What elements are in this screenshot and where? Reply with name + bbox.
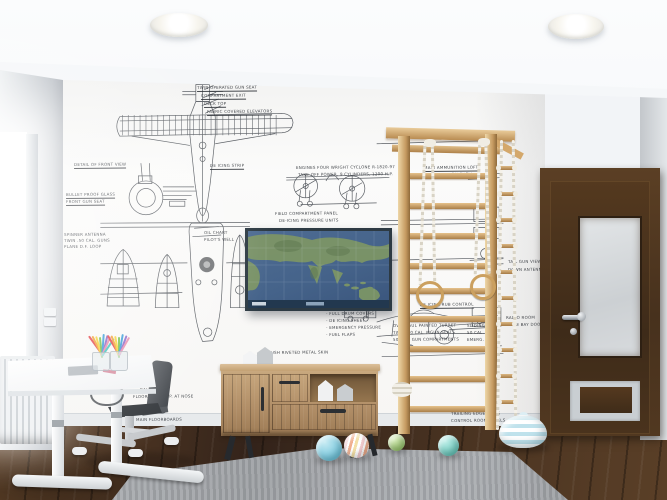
- light-switch: [44, 308, 56, 316]
- light-switch: [44, 318, 56, 326]
- plane-top-view: [117, 85, 293, 224]
- kids-room-scene: TWIN OPERATED GUN SEATCOMPARTMENT EXITDE…: [0, 0, 667, 500]
- side-plane-sketch: [377, 310, 502, 352]
- world-map-picture: [245, 228, 392, 311]
- skirting-board: [63, 413, 545, 426]
- door-lock-knob: [570, 328, 577, 335]
- door-handle-rose: [577, 312, 586, 321]
- door-slab: [550, 181, 650, 434]
- gear-detail: [129, 163, 197, 215]
- door: [540, 168, 660, 436]
- world-map-art: [248, 231, 389, 308]
- door-lower-panel: [580, 387, 632, 413]
- door-frosted-glass: [580, 218, 640, 356]
- radiator: [0, 356, 55, 444]
- plane-front-view: [286, 174, 389, 209]
